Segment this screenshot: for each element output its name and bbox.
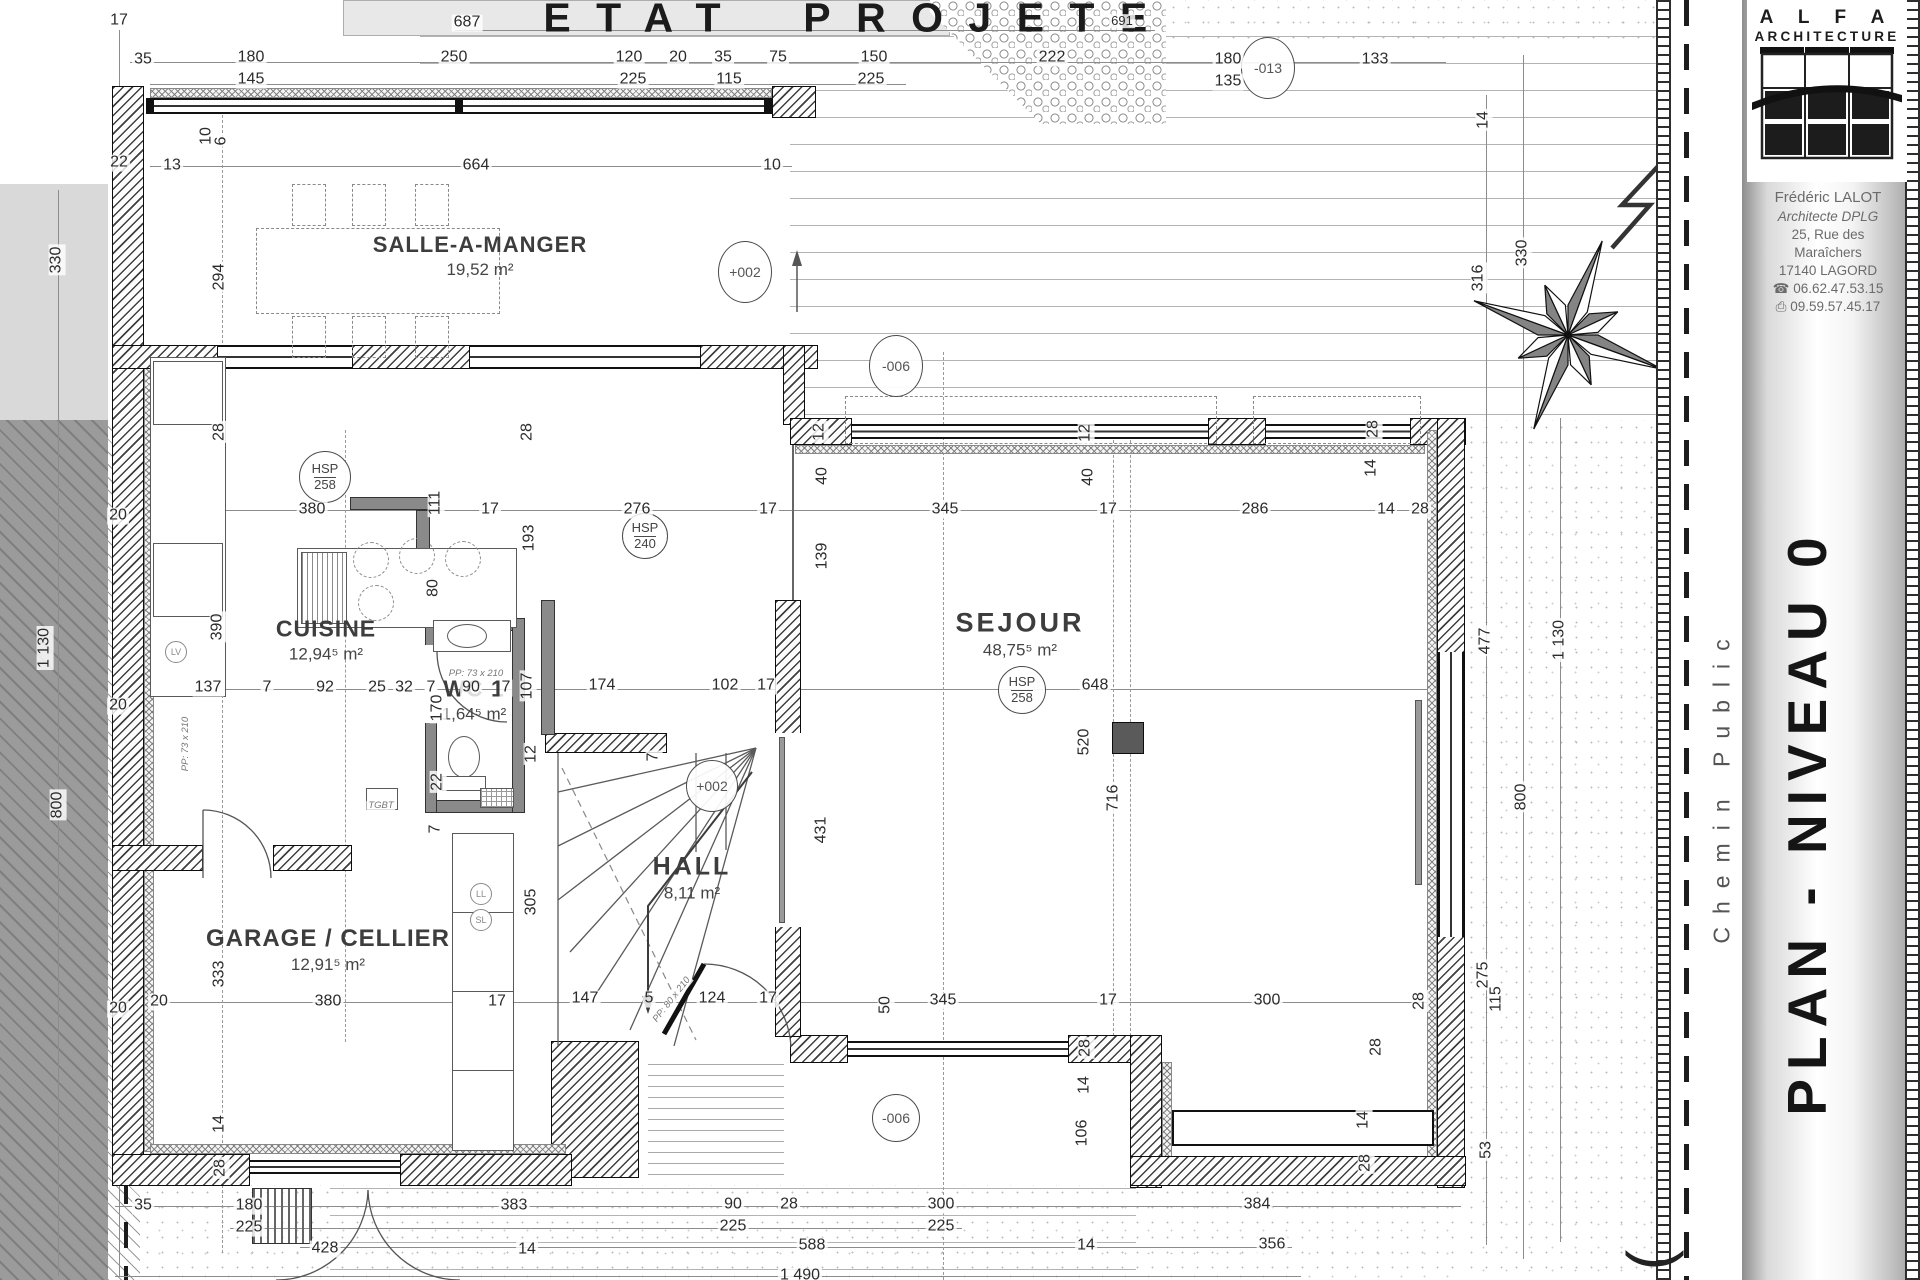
dimension-label: 6 [214,135,231,148]
garage-door-opening [250,1160,400,1174]
glazed-partition [792,425,794,603]
dimension-label: 316 [1471,263,1488,294]
dimension-label: 800 [50,790,67,821]
dimension-label: 25 [366,680,388,697]
phone-line: ☎ 06.62.47.53.15 [1742,280,1914,298]
shutter-box [845,396,1217,444]
dimension-line [115,1276,1301,1277]
appliance [153,361,223,425]
address-line: 17140 LAGORD [1742,262,1914,280]
level-marker: -006 [872,1094,920,1142]
dimension-label: 225 [618,72,649,89]
dimension-label: 20 [107,1001,129,1018]
dimension-label: 28 [1078,1037,1095,1059]
dimension-label: 22 [430,771,447,793]
dimension-label: 14 [1476,109,1493,131]
dimension-label: 28 [1358,1152,1375,1174]
window-mullion [455,98,463,114]
dimension-label: 17 [757,991,779,1008]
wc-basin [480,788,514,808]
dimension-label: 333 [212,959,229,990]
dimension-label: 28 [778,1197,800,1214]
dimension-label: 664 [461,158,492,175]
chair [415,184,449,226]
appliance-marker: LV [165,641,187,663]
dimension-label: 32 [393,680,415,697]
door-leaf [779,737,785,923]
room-label: HALL8,11 m² [653,853,732,904]
door-leaf [1415,700,1422,885]
dimension-label: 180 [1213,52,1244,69]
dimension-label: 286 [1240,502,1271,519]
dimension-label: 380 [297,502,328,519]
dimension-label: 14 [212,1113,229,1135]
dimension-label: 5 [643,991,656,1008]
dimension-label: 124 [697,991,728,1008]
chair [292,316,326,358]
dimension-label: 133 [1360,52,1391,69]
dimension-label: 135 [1213,74,1244,91]
dimension-label: 193 [522,523,539,554]
dimension-label: 111 [428,489,445,517]
dimension-label: 90 [722,1197,744,1214]
dimension-label: 102 [710,678,741,695]
phone-icon: ☎ [1773,281,1790,296]
window-mullion [764,98,772,114]
window-band [1438,652,1464,937]
fax-icon: ⎙ [1776,299,1787,314]
fax-line: ⎙ 09.59.57.45.17 [1742,298,1914,316]
dimension-label: 12 [812,421,829,443]
wall-insulation [1427,430,1437,1178]
dimension-label: 477 [1478,626,1495,657]
level-marker: -013 [1241,37,1295,99]
dimension-label: 225 [926,1219,957,1236]
dimension-label: 691 [1109,14,1135,28]
wall-insulation [795,445,1425,454]
dimension-label: 225 [234,1220,265,1237]
dimension-label: 390 [210,612,227,643]
dimension-label: 17 [1097,993,1119,1010]
dimension-label: 137 [193,680,224,697]
dimension-label: 170 [430,693,447,724]
room-label: SEJOUR48,75⁵ m² [955,608,1084,661]
sink [301,552,347,624]
dimension-label: 222 [1037,50,1068,67]
dimension-label: 17 [757,502,779,519]
dimension-label: 180 [234,1198,265,1215]
architect-name: Frédéric LALOT [1742,188,1914,208]
appliance-marker: SL [470,909,492,931]
dimension-label: 800 [1514,782,1531,813]
entrance-steps [648,1064,784,1182]
dimension-label: 330 [49,245,66,276]
dimension-label: 50 [878,994,895,1016]
firm-logo-icon [1752,44,1902,166]
ceiling-height-marker: HSP258 [299,451,351,503]
partition [541,600,555,735]
dimension-line [1523,55,1524,1259]
dimension-label: 17 [479,502,501,519]
dimension-label: 20 [107,698,129,715]
dimension-label: 28 [1366,418,1383,440]
stool [445,541,481,577]
window-mullion [146,98,154,114]
dimension-label: 17 [1097,502,1119,519]
dimension-label: 107 [520,671,537,702]
gravel-area [1166,0,1656,40]
dimension-label: 35 [132,1198,154,1215]
dimension-label: 28 [213,1157,230,1179]
dimension-label: 174 [587,678,618,695]
dimension-label: 14 [1375,502,1397,519]
firm-name: A L F A [1747,7,1907,29]
chair [352,184,386,226]
dimension-label: 14 [1077,1074,1094,1096]
dimension-label: 383 [499,1198,530,1215]
dimension-label: 345 [928,993,959,1010]
dimension-label: PP: 80 x 210 [650,974,694,1026]
phone-number: 06.62.47.53.15 [1793,281,1883,296]
street-label: Chemin Public [1709,626,1736,943]
dimension-label: TGBT [366,801,395,811]
post [1112,722,1144,754]
axis-line [943,352,944,1280]
dimension-label: 28 [1409,502,1431,519]
wall-segment [790,1035,848,1063]
firm-name-sub: ARCHITECTURE [1747,29,1907,44]
dimension-label: 716 [1106,783,1123,814]
chair [352,316,386,358]
dimension-label: 180 [236,50,267,67]
dimension-label: 150 [859,50,890,67]
dimension-label: 35 [712,50,734,67]
architect-credential: Architecte DPLG [1742,208,1914,226]
dimension-label: 356 [1257,1237,1288,1254]
partition [512,618,525,813]
dimension-label: 28 [212,421,229,443]
wall-corner [772,86,816,118]
wall-segment [783,345,805,425]
dimension-label: 12 [1078,422,1095,444]
closet-cell [452,1070,514,1151]
dimension-label: 53 [1479,1139,1496,1161]
dimension-label: 380 [313,994,344,1011]
dimension-label: 1 130 [37,626,54,670]
dimension-label: 1 130 [1552,618,1569,662]
wall-insulation [150,88,772,98]
dimension-label: 17 [755,678,777,695]
dimension-label: 12 [524,743,541,765]
dimension-label: 431 [814,815,831,846]
dimension-label: 648 [1080,678,1111,695]
dimension-label: 225 [718,1219,749,1236]
dimension-label: 20 [667,50,689,67]
dimension-label: 305 [524,887,541,918]
dimension-label: 300 [1252,993,1283,1010]
dimension-label: 28 [520,421,537,443]
architect-contact-block: Frédéric LALOT Architecte DPLG 25, Rue d… [1742,188,1914,317]
toilet-bowl [448,736,480,778]
dimension-label: 384 [1242,1197,1273,1214]
wall-segment [1130,1156,1466,1186]
chair [292,184,326,226]
wall-segment [273,845,352,871]
dimension-label: 250 [439,50,470,67]
dimension-label: 294 [212,262,229,293]
ceiling-height-marker: HSP240 [622,513,668,559]
road-surface [0,420,108,1280]
dimension-label: 7 [261,680,274,697]
boundary-line [1684,0,1689,1280]
dimension-label: 75 [767,50,789,67]
stool [353,542,389,578]
dimension-label: 14 [516,1242,538,1259]
dimension-line [1560,418,1561,1242]
room-label: CUISINE12,94⁵ m² [276,616,376,665]
dimension-label: 115 [714,72,744,89]
dimension-label: 28 [1369,1036,1386,1058]
dimension-label: 115 [1489,984,1506,1014]
dimension-label: 588 [797,1238,828,1255]
dimension-label: 120 [614,50,645,67]
dimension-label: 1 490 [778,1268,822,1280]
dimension-label: 40 [815,465,832,487]
dimension-label: 276 [622,502,653,519]
dimension-label: 14 [1075,1238,1097,1255]
dimension-label: 225 [856,72,887,89]
neighbor-ground [0,184,108,420]
stool [399,538,435,574]
wall-segment [400,1154,572,1186]
appliance-marker: LL [470,883,492,905]
dimension-label: 35 [132,52,154,69]
level-marker: +002 [686,760,738,812]
floor-plan-sheet: ETAT PROJETE SALLE-A-MANGER19,52 m²CUISI… [0,0,1920,1280]
level-marker: -006 [869,335,923,397]
corner-glyph: ( [1615,1250,1686,1271]
dimension-label: 17 [108,13,130,30]
dimension-label: 687 [452,15,483,32]
address-line: Maraîchers [1742,244,1914,262]
dimension-label: 330 [1515,238,1532,269]
dimension-label: PP: 73 x 210 [181,715,191,773]
dimension-label: 10 [761,158,783,175]
level-marker: +002 [718,241,772,303]
wall-exterior-left [112,86,144,1186]
dimension-label: 139 [815,541,832,572]
dimension-label: 17 [486,994,508,1011]
dimension-label: 90 [460,680,482,697]
fax-number: 09.59.57.45.17 [1790,299,1880,314]
dimension-label: 14 [1356,1109,1373,1131]
dimension-label: 7 [646,751,663,764]
window-band [848,1041,1070,1057]
dimension-label: 7 [428,823,445,836]
shutter-box [1253,396,1421,444]
dimension-label: 13 [161,158,183,175]
dimension-label: 145 [236,72,267,89]
dimension-label: 28 [1412,990,1429,1012]
address-line: 25, Rue des [1742,226,1914,244]
wall-segment [112,845,203,871]
fixed-window [1172,1110,1434,1146]
dimension-label: 20 [148,994,170,1011]
cooktop [153,543,223,617]
plan-level-title: PLAN - NIVEAU 0 [1775,528,1839,1115]
dimension-label: 22 [108,155,130,172]
room-label: SALLE-A-MANGER19,52 m² [373,232,587,280]
dimension-label: 40 [1081,466,1098,488]
sheet-title: ETAT PROJETE [543,0,1172,42]
dimension-label: 80 [426,577,443,599]
washbasin [447,624,487,648]
dimension-label: 20 [107,508,129,525]
room-label: GARAGE / CELLIER12,91⁵ m² [206,925,450,975]
partition [350,497,430,510]
dimension-label: 14 [1364,457,1381,479]
dimension-label: 300 [926,1197,957,1214]
dimension-label: 345 [930,502,961,519]
wall-insulation [1162,1062,1172,1158]
dimension-label: 92 [314,680,336,697]
ceiling-height-marker: HSP258 [998,666,1046,714]
dimension-label: 147 [570,991,601,1008]
hedge-fence [1656,0,1671,1280]
chair [415,316,449,358]
dimension-line [58,190,59,1276]
dimension-line [230,1228,962,1229]
dimension-label: 7 [500,680,513,697]
dimension-label: PP: 73 x 210 [447,669,505,679]
dimension-label: 428 [310,1241,341,1258]
dimension-label: 106 [1075,1118,1092,1149]
dimension-label: 520 [1077,727,1094,758]
firm-logo-card: A L F A ARCHITECTURE [1747,0,1907,182]
